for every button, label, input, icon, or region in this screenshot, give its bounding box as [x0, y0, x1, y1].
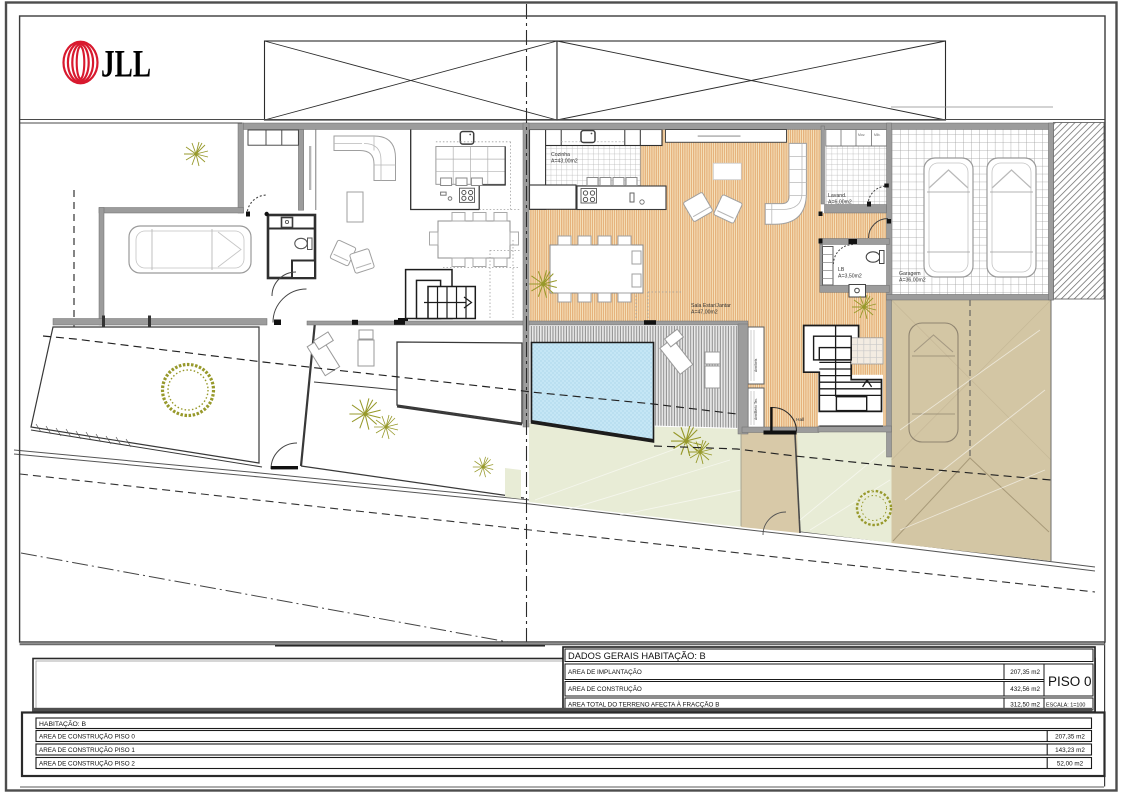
svg-text:AREA DE CONSTRUÇÃO PISO 0: AREA DE CONSTRUÇÃO PISO 0 [39, 732, 135, 741]
svg-text:AREA DE CONSTRUÇÃO PISO 1: AREA DE CONSTRUÇÃO PISO 1 [39, 745, 135, 754]
svg-text:ESCALA: 1=100: ESCALA: 1=100 [1046, 703, 1085, 709]
svg-text:JLL: JLL [101, 43, 151, 86]
svg-text:A=3,50m2: A=3,50m2 [838, 274, 862, 280]
svg-text:432,56 m2: 432,56 m2 [1010, 686, 1040, 693]
svg-text:AREA DE CONSTRUÇÃO PISO 2: AREA DE CONSTRUÇÃO PISO 2 [39, 759, 135, 768]
svg-text:Arm/Berlo Tec.: Arm/Berlo Tec. [754, 398, 758, 420]
svg-text:Hall: Hall [796, 417, 804, 423]
svg-text:Sala Estar/Jantar: Sala Estar/Jantar [691, 303, 731, 309]
svg-text:A=6,00m2: A=6,00m2 [828, 200, 852, 206]
svg-text:52,00 m2: 52,00 m2 [1057, 761, 1084, 768]
svg-text:HABITAÇÃO: B: HABITAÇÃO: B [39, 719, 87, 728]
svg-text:A=47,00m2: A=47,00m2 [691, 310, 718, 316]
svg-text:DADOS GERAIS HABITAÇÃO: B: DADOS GERAIS HABITAÇÃO: B [568, 651, 706, 661]
svg-text:Mov.: Mov. [858, 133, 865, 137]
svg-text:Mlb.: Mlb. [874, 133, 880, 137]
svg-text:LB: LB [838, 267, 845, 273]
svg-text:AREA DE IMPLANTAÇÃO: AREA DE IMPLANTAÇÃO [568, 667, 642, 676]
svg-text:PISO 0: PISO 0 [1048, 674, 1092, 689]
svg-text:143,23 m2: 143,23 m2 [1055, 747, 1085, 754]
svg-text:207,35 m2: 207,35 m2 [1010, 669, 1040, 676]
svg-text:Arm/bels: Arm/bels [754, 358, 758, 372]
svg-text:312,50 m2: 312,50 m2 [1010, 702, 1040, 709]
svg-text:Lavand.: Lavand. [828, 193, 846, 199]
svg-text:Garagem: Garagem [899, 271, 921, 277]
svg-text:Cozinha: Cozinha [551, 152, 570, 158]
svg-text:A=36,00m2: A=36,00m2 [899, 278, 926, 284]
svg-text:AREA DE CONSTRUÇÃO: AREA DE CONSTRUÇÃO [568, 684, 642, 693]
svg-text:A=43,00m2: A=43,00m2 [551, 159, 578, 165]
svg-text:207,35 m2: 207,35 m2 [1055, 734, 1085, 741]
svg-text:AREA TOTAL DO TERRENO AFECTA: AREA TOTAL DO TERRENO AFECTA À FRACÇÃO B [568, 700, 719, 709]
